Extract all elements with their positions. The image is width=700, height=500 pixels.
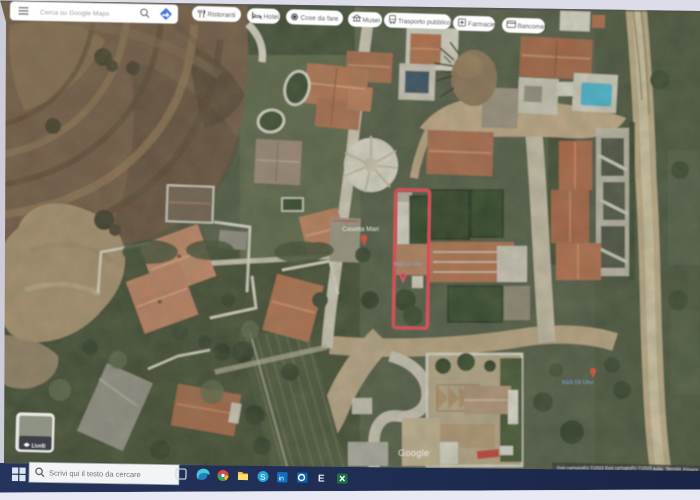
svg-text:Farmacie: Farmacie (468, 21, 496, 29)
svg-text:Cose da fare: Cose da fare (300, 15, 338, 23)
svg-text:Scrivi qui il testo da cercare: Scrivi qui il testo da cercare (49, 469, 141, 480)
svg-text:Hotel: Hotel (263, 14, 279, 21)
svg-text:Livelli: Livelli (32, 443, 46, 449)
svg-text:Cerca su Google Maps: Cerca su Google Maps (40, 9, 110, 17)
svg-text:in: in (278, 475, 284, 482)
svg-text:Musei: Musei (362, 17, 380, 25)
svg-text:Ristoranti: Ristoranti (207, 11, 236, 19)
svg-text:Bancomat: Bancomat (517, 23, 546, 31)
svg-text:S: S (260, 473, 266, 482)
svg-text:E: E (318, 473, 325, 484)
